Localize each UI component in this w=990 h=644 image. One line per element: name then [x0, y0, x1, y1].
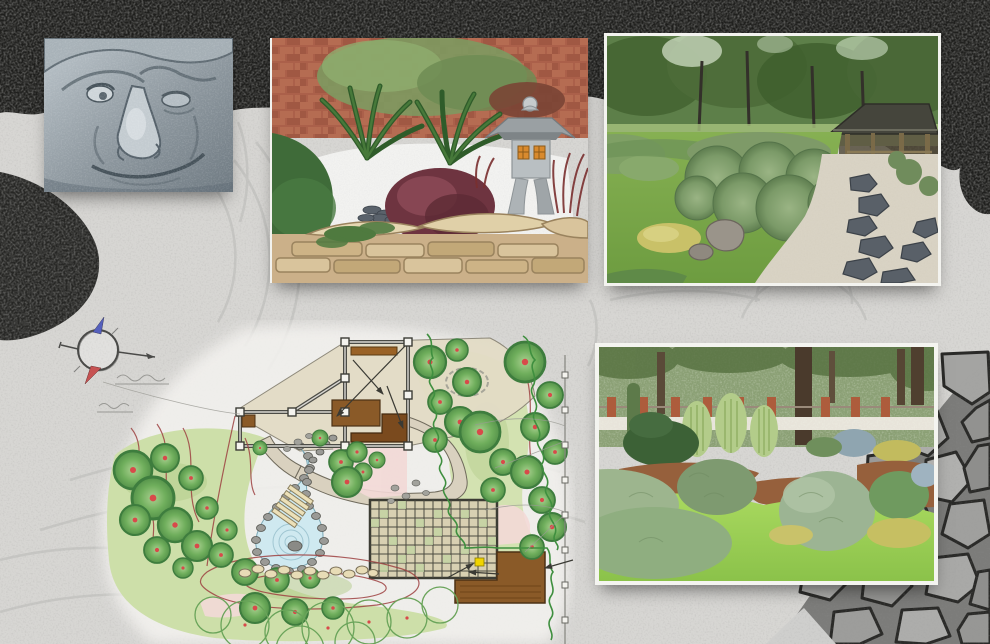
collage-board — [0, 0, 990, 644]
pine-shrub — [677, 459, 757, 515]
pergola-bench — [351, 347, 397, 355]
photo-conifer-garden — [595, 343, 938, 585]
highlight-cell — [475, 558, 484, 566]
east-arrowhead — [146, 353, 155, 359]
photo-lantern-garden — [270, 38, 588, 283]
golden-bush — [873, 440, 921, 462]
golden-bush-small — [769, 525, 813, 545]
sky-patch — [836, 36, 888, 60]
pond-rock — [288, 541, 302, 551]
south-needle — [85, 366, 101, 384]
landscape-master-plan — [95, 320, 575, 644]
small-deck — [242, 415, 255, 427]
sky-patch — [662, 36, 722, 67]
north-compass — [58, 312, 163, 392]
plan-grid-paving — [370, 500, 497, 578]
photo-stone-face — [44, 38, 233, 192]
golden-bush — [867, 518, 931, 548]
photo-clipped-garden — [604, 33, 941, 286]
